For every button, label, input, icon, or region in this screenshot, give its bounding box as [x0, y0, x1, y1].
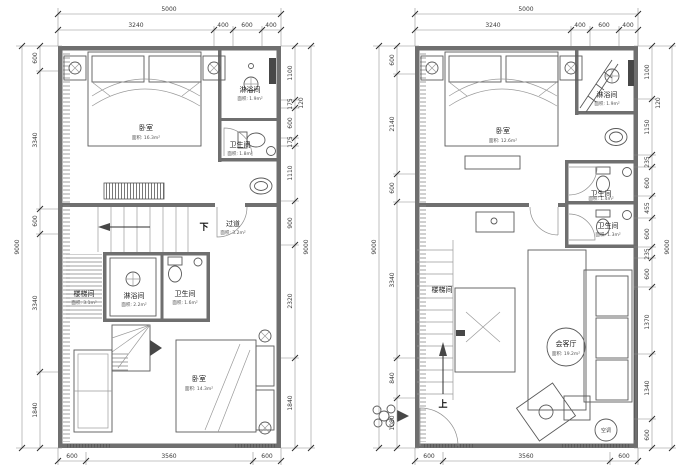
dim-text: 600: [618, 453, 630, 460]
room-area-living: 面积: 19.2m²: [552, 350, 580, 357]
dim-text: 3240: [128, 22, 143, 29]
dim-text: 3240: [485, 22, 500, 29]
dim-text: 455: [644, 202, 651, 214]
dim-text: 1100: [287, 65, 294, 80]
room-area-bedroom-top: 面积: 16.3m²: [132, 134, 160, 141]
floor-plans-svg: 卧室 面积: 16.3m² 淋浴间 面积: 1.9m² 卫生间 面积: 1.8m…: [0, 0, 694, 473]
dim-text: 400: [622, 22, 634, 29]
dim-text: 1110: [287, 165, 294, 180]
room-label-toilet-mid: 卫生间: [175, 289, 196, 298]
dim-text: 600: [644, 268, 651, 280]
dim-text: 9000: [371, 239, 378, 254]
dim-text: 1370: [644, 314, 651, 329]
left-plan: 卧室 面积: 16.3m² 淋浴间 面积: 1.9m² 卫生间 面积: 1.8m…: [14, 6, 315, 465]
bed-icon-bottom: [176, 330, 274, 434]
dim-text: 600: [644, 429, 651, 441]
dim-text: 235: [644, 248, 651, 260]
room-area-bedroom-bottom: 面积: 14.3m²: [185, 385, 213, 392]
wardrobe-icon: [74, 350, 112, 432]
stairs-icon: [417, 212, 515, 400]
window-bottom-left: [66, 444, 112, 448]
dim-text: 600: [287, 117, 294, 129]
room-label-shower: 淋浴间: [597, 90, 618, 99]
room-area-toilet-top: 面积: 1.8m²: [227, 150, 252, 157]
dim-text: 600: [32, 215, 39, 227]
up-label: 上: [438, 398, 447, 410]
dim-text: 120: [298, 97, 305, 109]
room-area-stairwell: 面积: 3.1m²: [71, 299, 96, 306]
dim-text: 600: [66, 453, 78, 460]
armchair-icon: [517, 383, 576, 441]
dim-text: 2320: [287, 293, 294, 308]
room-label-stairwell: 楼梯间: [74, 289, 95, 298]
washbasin-icon: [250, 178, 272, 194]
dim-text: 5000: [518, 6, 533, 13]
dim-text: 1840: [32, 402, 39, 417]
dim-text: 600: [389, 182, 396, 194]
room-label-stairwell: 楼梯间: [432, 285, 453, 294]
dim-text: 600: [389, 54, 396, 66]
room-label-bedroom: 卧室: [496, 126, 510, 135]
room-area-corridor: 面积: 3.2m²: [220, 229, 245, 236]
room-area-bedroom: 面积: 12.6m²: [489, 137, 517, 144]
right-plan: 卧室 面积: 12.6m² 淋浴间 面积: 1.9m² 卫生间 面积: 1.4m…: [371, 6, 676, 465]
radiator-icon: [104, 183, 164, 199]
room-area-toilet-mid: 面积: 1.6m²: [172, 299, 197, 306]
room-label-shower-top: 淋浴间: [240, 85, 261, 94]
dim-text: 600: [423, 453, 435, 460]
dim-text: 120: [655, 97, 662, 109]
dim-text: 900: [287, 217, 294, 229]
toilet-icon-mid: [168, 257, 202, 282]
floor-plan-canvas: 卧室 面积: 16.3m² 淋浴间 面积: 1.9m² 卫生间 面积: 1.8m…: [0, 0, 694, 473]
room-area-shower-top: 面积: 1.9m²: [237, 95, 262, 102]
party-wall-hatch: [420, 52, 426, 442]
dim-text: 400: [574, 22, 586, 29]
dim-text: 600: [644, 228, 651, 240]
dim-text: 1840: [287, 395, 294, 410]
dim-text: 3560: [518, 453, 533, 460]
dim-text: 400: [217, 22, 229, 29]
dim-text: 3340: [32, 132, 39, 147]
dim-text: 400: [265, 22, 277, 29]
dim-text: 600: [241, 22, 253, 29]
room-label-shower-mid: 淋浴间: [124, 291, 145, 300]
dim-text: 235: [644, 156, 651, 168]
dim-text: 175: [287, 98, 294, 110]
dim-text: 600: [261, 453, 273, 460]
room-label-toilet-lower: 卫生间: [598, 221, 619, 230]
room-label-bedroom-top: 卧室: [139, 123, 153, 132]
dim-text: 1080: [389, 415, 396, 430]
dim-text: 600: [32, 52, 39, 64]
room-label-corridor: 过道: [226, 219, 240, 228]
door-arc-bedroom: [530, 207, 558, 235]
room-area-shower: 面积: 1.9m²: [594, 100, 619, 107]
dim-text: 9000: [14, 239, 21, 254]
ac-label: 空调: [601, 427, 611, 434]
room-area-shower-mid: 面积: 2.2m²: [121, 301, 146, 308]
window-bottom-right: [233, 444, 277, 448]
washbasin-icon: [605, 129, 627, 146]
sofa-icon: [584, 270, 632, 402]
dim-text: 9000: [664, 239, 671, 254]
left-plan-walls: [58, 46, 281, 448]
room-label-bedroom-bottom: 卧室: [192, 374, 206, 383]
dim-text: 3340: [389, 272, 396, 287]
dim-text: 3560: [161, 453, 176, 460]
up-arrow-icon: [439, 342, 447, 394]
dim-text: 840: [389, 372, 396, 384]
dim-text: 600: [598, 22, 610, 29]
dim-text: 3340: [32, 295, 39, 310]
winder-stairs-icon: [112, 325, 162, 371]
room-area-toilet-upper: 面积: 1.4m²: [588, 195, 613, 202]
room-label-living: 会客厅: [556, 339, 577, 348]
dim-text: 1150: [644, 119, 651, 134]
dim-text: 1340: [644, 380, 651, 395]
bed-icon: [445, 52, 558, 169]
dim-text: 1100: [644, 64, 651, 79]
dim-text: 2140: [389, 116, 396, 131]
dim-text: 175: [287, 136, 294, 148]
dim-text: 600: [644, 177, 651, 189]
room-labels-right: 卧室 面积: 12.6m² 淋浴间 面积: 1.9m² 卫生间 面积: 1.4m…: [432, 90, 621, 434]
dim-text: 9000: [303, 239, 310, 254]
room-labels-left: 卧室 面积: 16.3m² 淋浴间 面积: 1.9m² 卫生间 面积: 1.8m…: [71, 85, 262, 392]
party-wall-hatch: [63, 52, 70, 442]
dim-text: 5000: [161, 6, 176, 13]
window-right: [634, 290, 638, 440]
room-label-toilet-top: 卫生间: [230, 140, 251, 149]
window-bottom-right: [560, 444, 630, 448]
down-label: 下: [199, 222, 208, 233]
window-bottom-left: [423, 444, 473, 448]
room-area-toilet-lower: 面积: 1.3m²: [595, 231, 620, 238]
